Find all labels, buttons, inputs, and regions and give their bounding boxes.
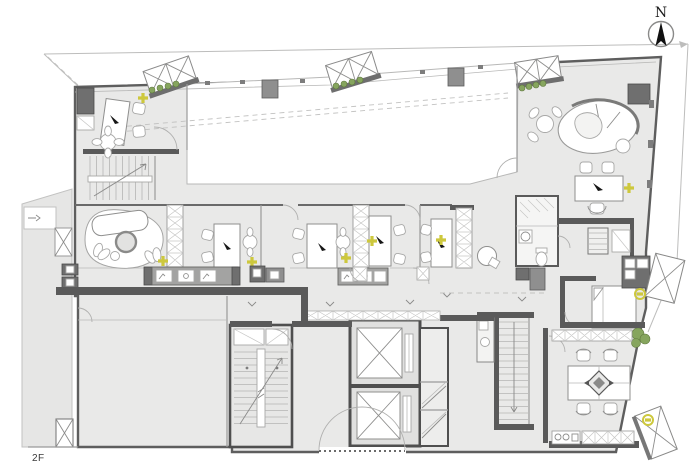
chair: [420, 251, 432, 263]
shelving-bottom: [582, 431, 634, 444]
door-opening: [319, 447, 406, 457]
chair: [393, 253, 406, 265]
storage-partition-1: [167, 205, 183, 267]
shelving-top: [552, 330, 632, 341]
chair: [201, 229, 214, 241]
stair-main: [230, 325, 292, 447]
cabinet-blocks-mid: [250, 266, 284, 282]
office-desk: [307, 224, 337, 268]
tall-cabinet: [77, 88, 94, 114]
chair: [201, 251, 214, 263]
north-compass: N: [649, 5, 674, 47]
bay-window-bottom-right: [632, 406, 677, 460]
round-coffee-table: [116, 232, 136, 252]
service-closets: [420, 328, 448, 446]
potted-plant: [632, 328, 651, 348]
chair: [133, 125, 146, 137]
guest-chair: [588, 203, 606, 214]
compass-north-label: N: [655, 5, 667, 21]
floor-label: 2F: [32, 453, 45, 464]
structural-column: [262, 80, 278, 98]
structural-column: [448, 68, 464, 86]
angled-bay-window: [645, 253, 685, 303]
small-stair: [588, 228, 608, 254]
left-window-mullion: [55, 228, 72, 256]
corner-column-cabinet: [628, 84, 650, 104]
chair: [602, 162, 614, 173]
chair: [580, 162, 592, 173]
elevator-2: [357, 392, 411, 439]
kitchenette-counter: [552, 431, 580, 444]
storage-partition-2: [353, 205, 369, 267]
wc-toilet: [536, 248, 547, 266]
chair: [292, 228, 305, 240]
left-column-mullion: [56, 419, 73, 447]
chair: [132, 102, 146, 115]
elevator-1: [357, 328, 413, 378]
corridor-storage-band: [303, 311, 440, 320]
compass-needle: [656, 22, 667, 46]
printer-cabinet-row-1: [144, 267, 240, 285]
floor-plan-drawing: N 2F: [0, 0, 700, 472]
chair: [393, 224, 406, 236]
ottoman: [616, 139, 630, 153]
wc-small: [477, 318, 494, 362]
chair: [292, 252, 305, 264]
chair: [420, 224, 432, 236]
floor-plan-canvas: N 2F: [0, 0, 700, 472]
adjacent-building: [22, 189, 73, 447]
